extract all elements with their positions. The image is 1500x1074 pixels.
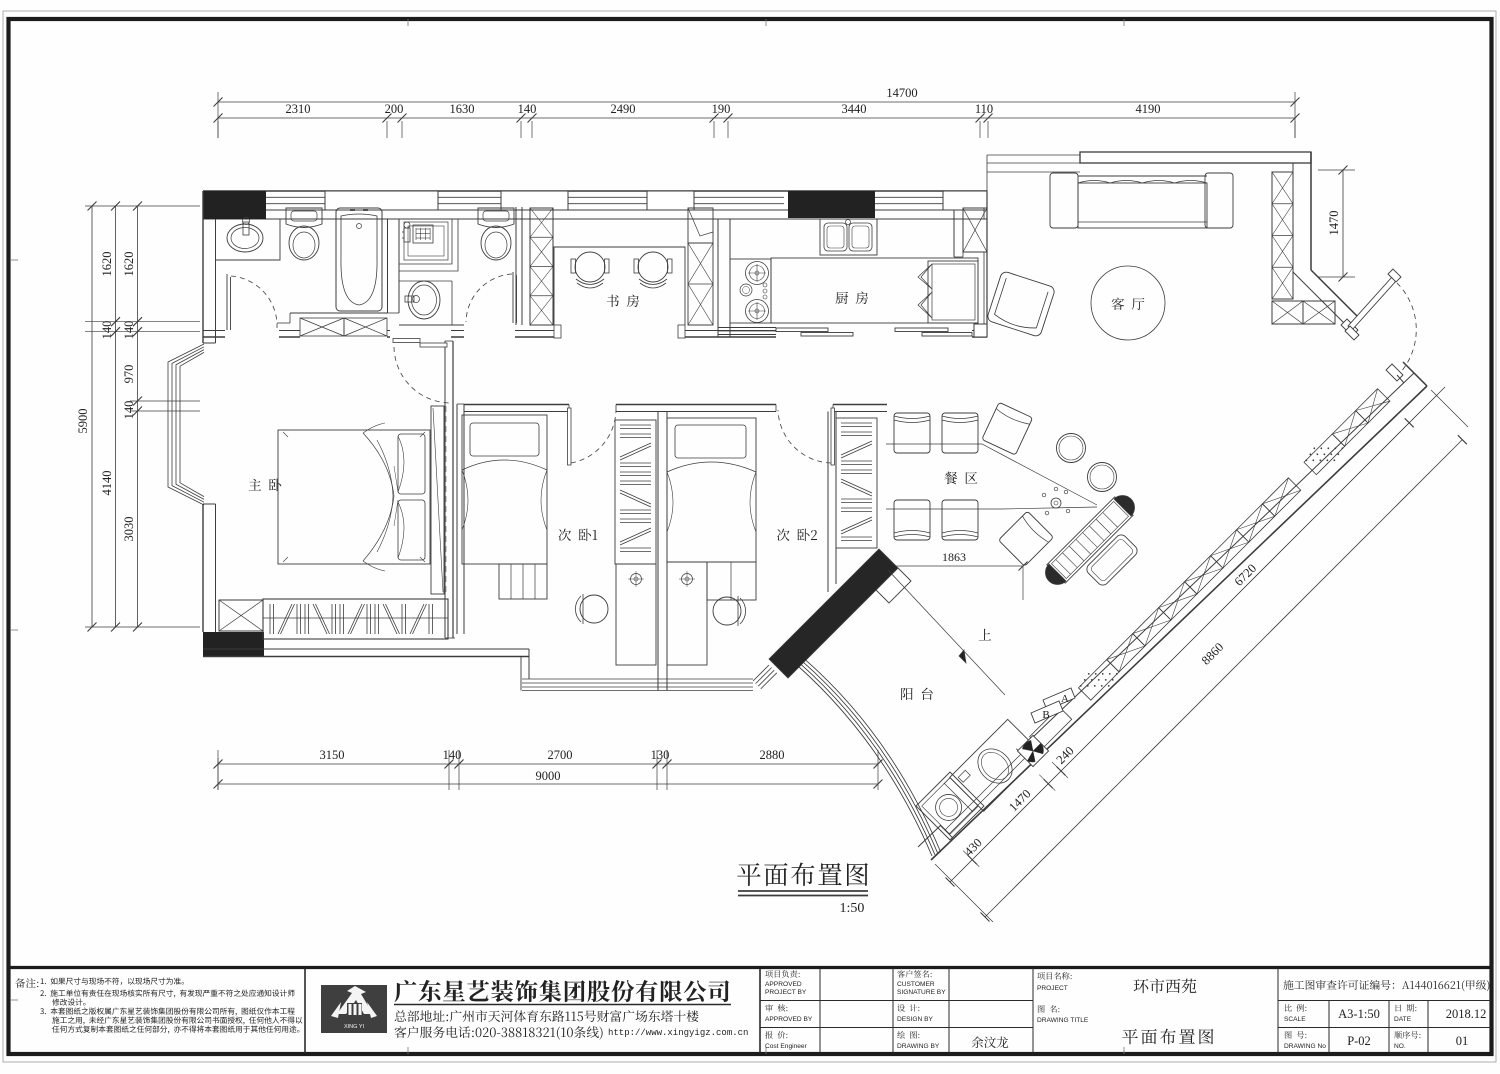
svg-text:970: 970 bbox=[122, 365, 136, 384]
svg-text:DRAWING TITLE: DRAWING TITLE bbox=[1037, 1017, 1089, 1024]
svg-text:5900: 5900 bbox=[76, 409, 90, 434]
svg-text:4140: 4140 bbox=[100, 471, 114, 496]
svg-text:PROJECT BY: PROJECT BY bbox=[765, 989, 807, 996]
svg-text:DATE: DATE bbox=[1394, 1016, 1412, 1023]
svg-text:140: 140 bbox=[122, 321, 136, 340]
svg-text:DESIGN BY: DESIGN BY bbox=[897, 1016, 934, 1023]
svg-text:NO.: NO. bbox=[1394, 1043, 1406, 1050]
svg-text:APPROVED BY: APPROVED BY bbox=[765, 1016, 813, 1023]
svg-text:2700: 2700 bbox=[548, 748, 573, 762]
svg-text:140: 140 bbox=[100, 321, 114, 340]
svg-text:2018.12: 2018.12 bbox=[1446, 1007, 1487, 1021]
svg-text:1:50: 1:50 bbox=[840, 901, 865, 916]
svg-text:200: 200 bbox=[385, 102, 404, 116]
svg-text:140: 140 bbox=[518, 102, 537, 116]
svg-text:3150: 3150 bbox=[320, 748, 345, 762]
svg-text:DRAWING BY: DRAWING BY bbox=[897, 1043, 940, 1050]
svg-text:B: B bbox=[1042, 709, 1049, 721]
svg-text:CUSTOMER: CUSTOMER bbox=[897, 981, 935, 988]
svg-text:2880: 2880 bbox=[760, 748, 785, 762]
svg-text:APPROVED: APPROVED bbox=[765, 981, 802, 988]
svg-text:4190: 4190 bbox=[1136, 102, 1161, 116]
svg-text:1620: 1620 bbox=[100, 252, 114, 277]
svg-text:9000: 9000 bbox=[536, 769, 561, 783]
svg-text:DRAWING No: DRAWING No bbox=[1284, 1043, 1326, 1050]
svg-text:2310: 2310 bbox=[286, 102, 311, 116]
svg-text:3440: 3440 bbox=[842, 102, 867, 116]
svg-text:1470: 1470 bbox=[1327, 211, 1341, 236]
svg-text:1630: 1630 bbox=[450, 102, 475, 116]
svg-text:P-02: P-02 bbox=[1347, 1034, 1371, 1048]
svg-text:XING YI: XING YI bbox=[344, 1024, 365, 1030]
svg-text:14700: 14700 bbox=[886, 86, 917, 100]
svg-text:1620: 1620 bbox=[122, 252, 136, 277]
svg-text:140: 140 bbox=[122, 401, 136, 420]
svg-text:190: 190 bbox=[712, 102, 731, 116]
svg-text:PROJECT: PROJECT bbox=[1037, 985, 1068, 992]
svg-text:Cost Engineer: Cost Engineer bbox=[765, 1043, 808, 1050]
svg-text:http://www.xingyigz.com.cn: http://www.xingyigz.com.cn bbox=[608, 1028, 748, 1038]
svg-text:A: A bbox=[1061, 693, 1069, 705]
svg-text:A3-1:50: A3-1:50 bbox=[1338, 1007, 1380, 1021]
svg-text:01: 01 bbox=[1456, 1034, 1469, 1048]
svg-text:2490: 2490 bbox=[611, 102, 636, 116]
svg-text:110: 110 bbox=[975, 102, 993, 116]
svg-text:1863: 1863 bbox=[942, 550, 966, 564]
svg-text:SIGNATURE BY: SIGNATURE BY bbox=[897, 989, 946, 996]
svg-text:140: 140 bbox=[443, 748, 462, 762]
svg-text:130: 130 bbox=[651, 748, 670, 762]
svg-text:SCALE: SCALE bbox=[1284, 1016, 1306, 1023]
svg-text:3030: 3030 bbox=[122, 517, 136, 542]
